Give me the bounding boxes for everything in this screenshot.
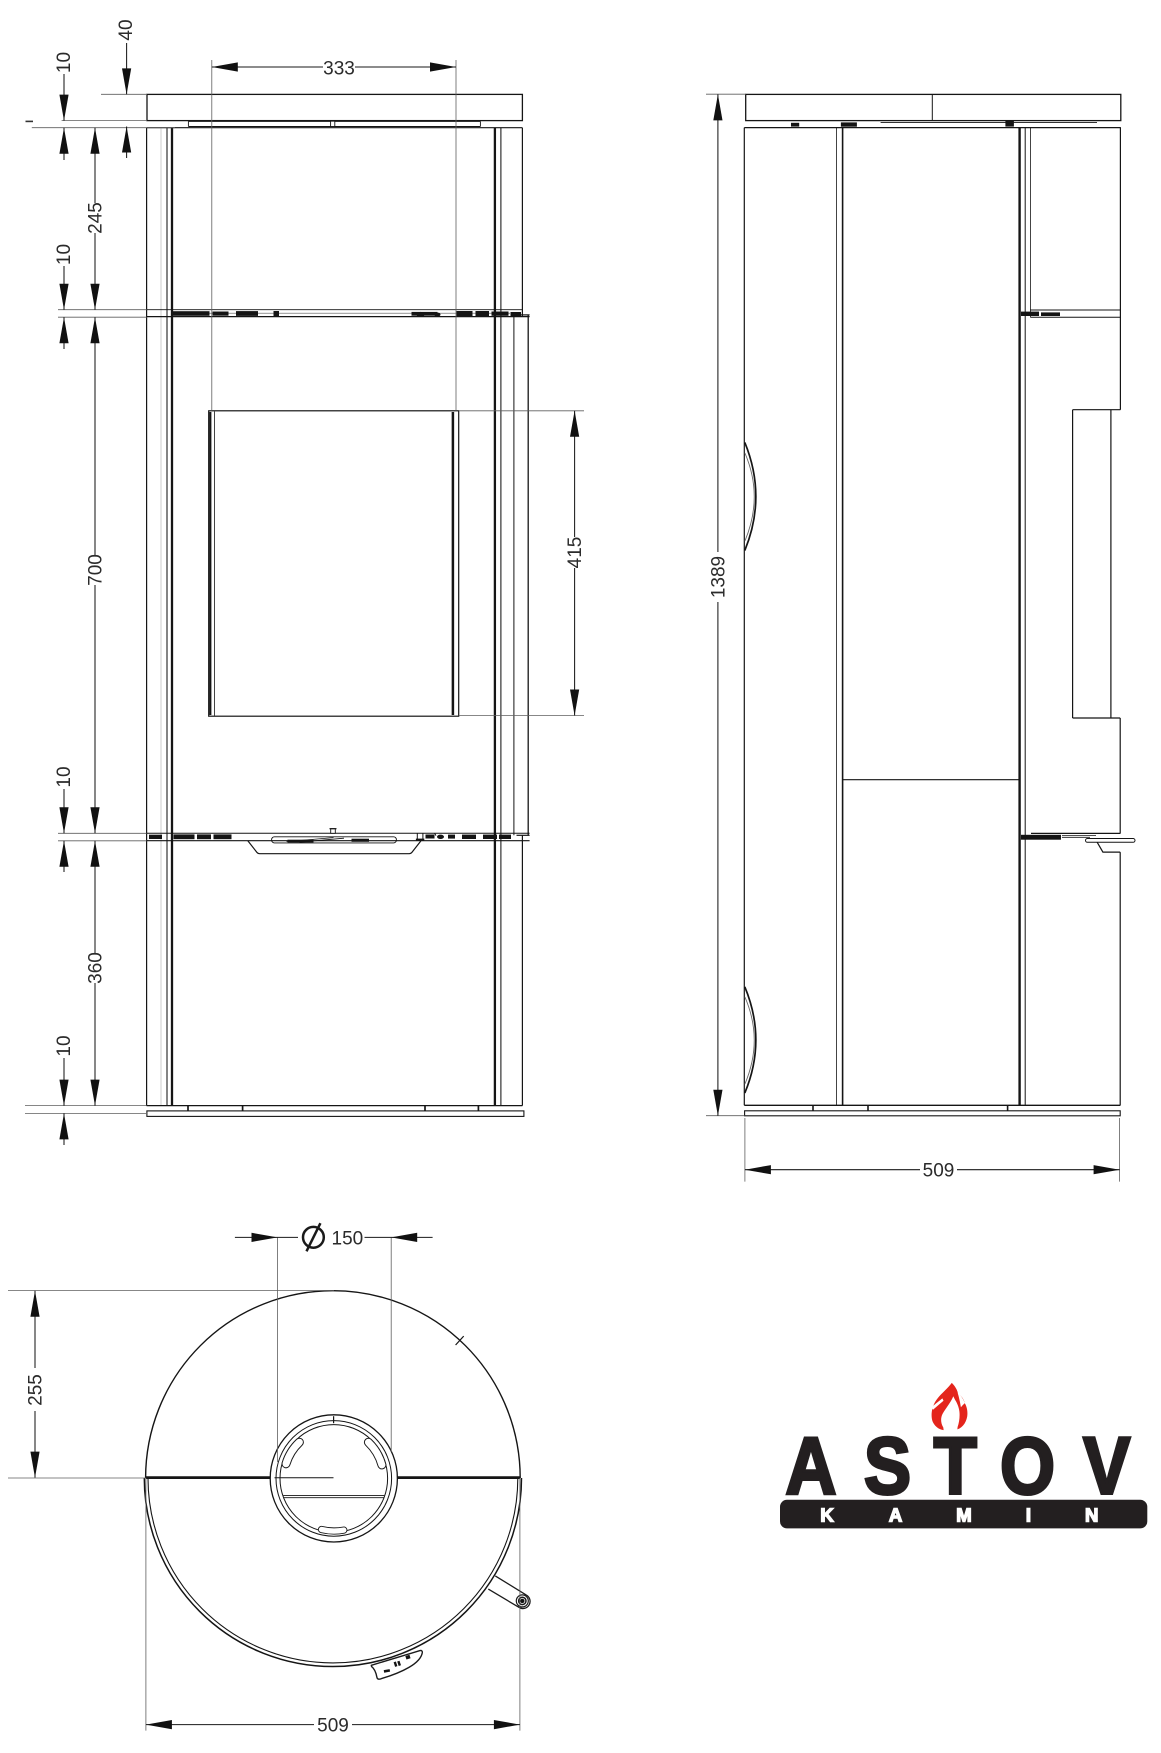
svg-text:M: M — [956, 1505, 971, 1526]
svg-text:10: 10 — [54, 52, 75, 73]
svg-text:N: N — [1085, 1505, 1098, 1526]
svg-text:10: 10 — [54, 244, 75, 265]
svg-text:333: 333 — [323, 59, 355, 80]
svg-text:150: 150 — [332, 1228, 364, 1249]
svg-text:360: 360 — [86, 952, 107, 984]
svg-text:509: 509 — [923, 1161, 955, 1182]
svg-text:T: T — [934, 1421, 977, 1511]
svg-text:509: 509 — [317, 1715, 349, 1736]
svg-text:S: S — [864, 1421, 911, 1511]
svg-text:1389: 1389 — [709, 556, 730, 598]
svg-text:700: 700 — [86, 554, 107, 586]
svg-text:A: A — [889, 1505, 902, 1526]
svg-text:255: 255 — [26, 1374, 47, 1406]
svg-text:40: 40 — [116, 19, 137, 40]
svg-text:K: K — [820, 1505, 834, 1526]
svg-text:V: V — [1083, 1421, 1131, 1511]
svg-text:415: 415 — [565, 537, 586, 569]
svg-text:10: 10 — [54, 766, 75, 787]
svg-text:O: O — [1000, 1421, 1055, 1511]
svg-text:10: 10 — [54, 1035, 75, 1056]
svg-text:245: 245 — [86, 202, 107, 234]
svg-text:I: I — [1026, 1505, 1031, 1526]
svg-text:A: A — [785, 1421, 836, 1511]
